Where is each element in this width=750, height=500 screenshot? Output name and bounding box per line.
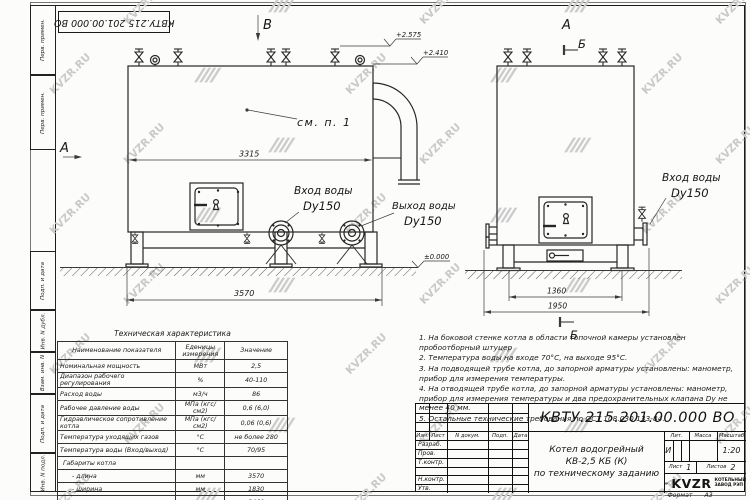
sheets-value: 2 <box>730 463 735 472</box>
format-size: А3 <box>704 492 712 499</box>
tech-table-cell: Расход воды <box>58 388 176 401</box>
dimension-3570-label: 3570 <box>234 289 254 298</box>
elevation-body-label: +2.410 <box>423 49 448 57</box>
sheet-value: 1 <box>686 463 691 472</box>
elevation-ground-label: ±0.000 <box>424 253 449 261</box>
tech-table-cell: 86 <box>225 388 288 401</box>
tech-table-cell: мм <box>176 496 225 500</box>
side-view-valves <box>504 49 645 222</box>
tech-table-cell: Температура воды (Вход/выход) <box>58 444 176 457</box>
front-view <box>126 56 420 268</box>
dimension-1950-label: 1950 <box>548 302 567 311</box>
tech-table-cell: Диапазон рабочего регулирования <box>58 373 176 388</box>
tech-table-cell: Номинальная мощность <box>58 360 176 373</box>
lit-value: И <box>664 440 673 461</box>
logo-text: KVZR <box>671 476 711 491</box>
tech-table-row: - высотамм2460 <box>58 496 288 500</box>
tech-table-cell: 1830 <box>225 483 288 496</box>
ground-lines <box>60 268 682 280</box>
tech-table-cell: мм <box>176 483 225 496</box>
tech-table-row: Температура уходящих газов°Сне более 280 <box>58 431 288 444</box>
sheets-label: Листов <box>707 464 727 470</box>
view-a-title-label: А <box>561 18 571 33</box>
side-view-bolts <box>547 203 584 236</box>
outlet-callout-label: Выход воды <box>392 201 456 212</box>
frame-column-label: Подп. и дата <box>40 261 46 299</box>
revision-col-label: Дата <box>512 431 529 440</box>
technical-note: 2. Температура воды на входе 70°С, на вы… <box>419 353 747 363</box>
frame-column-label: Подп. и дата <box>40 404 46 442</box>
technical-note: 3. На подводящей трубе котла, до запорно… <box>419 364 747 383</box>
frame-column-label: Взам. инв. N <box>40 355 46 391</box>
tech-table-cell: Рабочее давление воды <box>58 401 176 416</box>
revision-col-label: Подп. <box>488 431 512 440</box>
tech-table-row: - длинамм3570 <box>58 470 288 483</box>
tech-table-cell: - ширина <box>58 483 176 496</box>
side-view <box>486 66 647 271</box>
frame-column-label: Инв. N подл. <box>40 454 46 491</box>
logo-subtext-line2: ЗАВОД РЭП <box>714 483 746 488</box>
product-title: Котел водогрейный КВ-2,5 КБ (К) по техни… <box>529 431 664 493</box>
frame-column-box: Перв. примен. <box>30 5 56 75</box>
tech-table-header-cell: Еденицы измерения <box>176 342 225 360</box>
tech-table-cell: Габариты котла <box>58 457 176 470</box>
sheet-cell: Лист 1 <box>664 461 696 473</box>
spring-logo-icon <box>664 477 668 490</box>
signature-row-label: Пров. <box>416 449 449 458</box>
product-title-line2: КВ-2,5 КБ (К) <box>566 456 628 468</box>
tech-table-row: Габариты котла <box>58 457 288 470</box>
front-view-valves <box>132 49 339 244</box>
tech-table-header-row: Наименование показателяЕденицы измерения… <box>58 342 288 360</box>
section-b-top-label: Б <box>578 37 586 51</box>
tech-table-header-cell: Значение <box>225 342 288 360</box>
dimension-1360-label: 1360 <box>547 287 566 296</box>
tech-table-cell: не более 280 <box>225 431 288 444</box>
signature-row-label: Н.контр. <box>416 475 449 484</box>
outlet-callout-size: Dy150 <box>404 214 442 228</box>
mass-label: Масса <box>689 431 717 440</box>
tech-table-row: Гидравлическое сопротивление котлаМПа (к… <box>58 416 288 431</box>
tech-table-cell: Температура уходящих газов <box>58 431 176 444</box>
product-title-line3: по техническому заданию <box>534 468 659 480</box>
tech-table-row: Температура воды (Вход/выход)°С70/95 <box>58 444 288 457</box>
frame-column-box: Подп. и дата <box>30 251 56 310</box>
tech-table-cell: 2,5 <box>225 360 288 373</box>
inlet2-callout-size: Dy150 <box>671 186 709 200</box>
tech-table-cell: % <box>176 373 225 388</box>
frame-column-box: Инв. N дубл. <box>30 310 56 352</box>
frame-column-label: Инв. N дубл. <box>40 313 46 350</box>
tech-table-row: Расход водым3/ч86 <box>58 388 288 401</box>
tech-table-cell <box>176 457 225 470</box>
revision-col-label: Изм. <box>416 431 429 440</box>
tech-table-cell: - длина <box>58 470 176 483</box>
scale-value: 1:20 <box>717 440 746 461</box>
tech-table-cell: МПа (кгс/см2) <box>176 416 225 431</box>
lit-label: Лит. <box>664 431 689 440</box>
company-logo: KVZR КОТЕЛЬНЫЙ ЗАВОД РЭП <box>664 473 746 493</box>
tech-table-cell: 70/95 <box>225 444 288 457</box>
tech-table-cell: МВт <box>176 360 225 373</box>
tech-table-cell: мм <box>176 470 225 483</box>
tech-table-cell <box>225 457 288 470</box>
tech-table-cell: Гидравлическое сопротивление котла <box>58 416 176 431</box>
tech-table-cell: м3/ч <box>176 388 225 401</box>
tech-table-row: Рабочее давление водыМПа (кгс/см2)0,6 (6… <box>58 401 288 416</box>
frame-column-box: Перв. примен. <box>30 75 56 150</box>
drawing-sheet: KVZR.RUKVZR.RUKVZR.RUKVZR.RUKVZR.RUKVZR.… <box>0 0 750 500</box>
signature-row-label <box>416 466 449 475</box>
frame-column-label: Перв. примен. <box>40 92 46 134</box>
elevation-top-label: +2.575 <box>396 31 421 39</box>
tech-table-cell: 0,06 (0,6) <box>225 416 288 431</box>
title-block: КВТУ.215.201.00.000 ВО Изм.ЛистN докум.П… <box>415 403 745 492</box>
frame-column-box: Подп. и дата <box>30 394 56 453</box>
frame-column-box: Взам. инв. N <box>30 352 56 394</box>
frame-column-label: Перв. примен. <box>40 19 46 61</box>
signature-row-label: Т.контр. <box>416 458 449 467</box>
logo-subtext: КОТЕЛЬНЫЙ ЗАВОД РЭП <box>714 478 746 489</box>
see-note-callout: см. п. 1 <box>297 116 352 129</box>
tech-characteristics-table: Наименование показателяЕденицы измерения… <box>57 341 288 500</box>
tech-table-cell: 3570 <box>225 470 288 483</box>
revision-col-label: Лист <box>429 431 447 440</box>
revision-col-label: N докум. <box>447 431 488 440</box>
tech-table-cell: 0,6 (6,0) <box>225 401 288 416</box>
tech-table-row: Диапазон рабочего регулирования%40-110 <box>58 373 288 388</box>
tech-table-cell: 40-110 <box>225 373 288 388</box>
frame-column-box: Инв. N подл. <box>30 453 56 492</box>
tech-table-cell: МПа (кгс/см2) <box>176 401 225 416</box>
format-label: ФорматА3 <box>630 492 750 499</box>
tech-table-header-cell: Наименование показателя <box>58 342 176 360</box>
dimension-3315-label: 3315 <box>239 150 259 159</box>
format-word: Формат <box>667 492 692 499</box>
tech-table-cell: °С <box>176 431 225 444</box>
title-block-doc-number: КВТУ.215.201.00.000 ВО <box>529 404 746 431</box>
front-view-bolts <box>198 189 361 241</box>
view-b-label: В <box>263 18 272 33</box>
inlet-callout-label: Вход воды <box>294 185 353 197</box>
tech-table-row: - ширинамм1830 <box>58 483 288 496</box>
tech-table-title: Техническая характеристика <box>57 329 288 338</box>
scale-label: Масштаб <box>717 431 746 440</box>
tech-table-cell: - высота <box>58 496 176 500</box>
sheets-cell: Листов 2 <box>696 461 746 473</box>
product-title-line1: Котел водогрейный <box>549 444 644 456</box>
signature-row-label: Утв. <box>416 484 449 493</box>
inlet2-callout-label: Вход воды <box>662 172 721 184</box>
signature-row-label: Разраб. <box>416 440 449 449</box>
tech-table-cell: 2460 <box>225 496 288 500</box>
sheet-label: Лист <box>669 464 682 470</box>
tech-table-cell: °С <box>176 444 225 457</box>
view-a-arrow-label: А <box>59 141 69 156</box>
inlet-callout-size: Dy150 <box>303 199 341 213</box>
technical-note: 1. На боковой стенке котла в области топ… <box>419 333 747 352</box>
tech-table-row: Номинальная мощностьМВт2,5 <box>58 360 288 373</box>
